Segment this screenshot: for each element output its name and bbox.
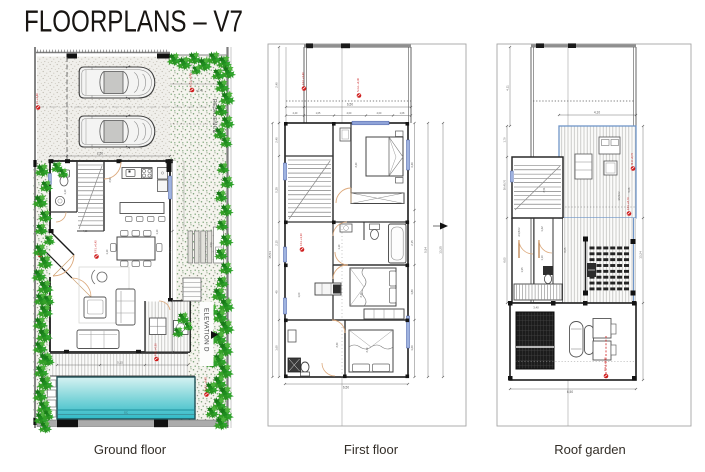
svg-text:1,05: 1,05 [316,112,321,115]
svg-text:F.F.L +3,40: F.F.L +3,40 [301,72,305,85]
svg-text:9,06: 9,06 [628,187,631,192]
svg-text:6,50: 6,50 [343,386,349,390]
svg-text:M.H +9,70: M.H +9,70 [630,152,634,165]
svg-text:36,5m²: 36,5m² [617,191,621,200]
svg-text:2,40: 2,40 [275,82,279,88]
svg-text:Roof garden: Roof garden [554,442,626,457]
svg-text:24,8m²: 24,8m² [517,227,521,236]
svg-text:1,10: 1,10 [540,255,544,261]
svg-text:N.G.L +0,45: N.G.L +0,45 [189,72,193,87]
svg-text:RESIDENCE: RESIDENCE [211,99,217,134]
svg-text:6,50: 6,50 [347,103,353,107]
svg-text:Ground floor: Ground floor [94,442,167,457]
svg-text:1,60: 1,60 [275,345,279,351]
svg-text:+0,45: +0,45 [196,89,204,93]
svg-text:6,05: 6,05 [503,257,507,263]
svg-text:3,40: 3,40 [533,306,539,310]
svg-text:2,00: 2,00 [347,112,352,115]
svg-text:1,60: 1,60 [410,345,414,351]
svg-text:1,35: 1,35 [520,267,524,273]
svg-text:2,40: 2,40 [275,137,279,143]
svg-text:1,10: 1,10 [156,229,159,234]
svg-text:3,90: 3,90 [109,177,112,182]
svg-text:1,08: 1,08 [400,112,405,115]
svg-text:5,15: 5,15 [117,361,123,365]
svg-text:1,10: 1,10 [338,244,341,249]
svg-text:P.L +0,40: P.L +0,40 [35,93,39,104]
svg-text:3,51: 3,51 [543,187,546,192]
svg-text:N.G.L +3,30: N.G.L +3,30 [356,77,360,92]
svg-text:6,50: 6,50 [567,390,573,394]
svg-text:30,40,70: 30,40,70 [503,179,507,190]
svg-text:N.G.L +0,25: N.G.L +0,25 [204,376,208,391]
svg-text:40: 40 [275,290,279,294]
svg-text:1,10: 1,10 [106,249,109,254]
svg-text:13,25: 13,25 [439,246,443,254]
svg-text:3,10: 3,10 [360,292,363,297]
svg-text:4,10: 4,10 [594,111,600,115]
svg-text:F.F.L +3,30: F.F.L +3,30 [299,233,303,246]
svg-text:F.F.L +0,30: F.F.L +0,30 [154,343,158,356]
svg-text:1,22: 1,22 [540,226,544,232]
svg-text:2,50: 2,50 [97,152,103,156]
svg-text:4,60: 4,60 [83,230,88,233]
svg-text:6,05: 6,05 [564,247,567,252]
svg-text:2,50: 2,50 [209,242,213,248]
svg-text:FLOORPLANS – V7: FLOORPLANS – V7 [24,5,243,39]
svg-text:4,25: 4,25 [168,247,172,253]
svg-text:4,11: 4,11 [506,85,510,91]
svg-text:First floor: First floor [344,442,399,457]
svg-text:3,40: 3,40 [410,162,414,168]
svg-text:5,29: 5,29 [275,187,279,193]
svg-text:15,54: 15,54 [268,251,272,259]
svg-text:2,00: 2,00 [377,112,382,115]
svg-text:1,70: 1,70 [503,137,507,143]
svg-text:3,30: 3,30 [336,342,339,347]
svg-text:F.F.L +6,70: F.F.L +6,70 [626,197,630,210]
svg-text:ELEVATION D: ELEVATION D [203,308,210,352]
svg-text:5,54: 5,54 [424,247,428,253]
svg-text:2,15: 2,15 [275,240,279,246]
svg-text:13,24: 13,24 [639,251,643,259]
svg-text:1,10: 1,10 [64,189,67,194]
svg-text:1,80: 1,80 [410,289,414,295]
svg-text:P.G.L +9,90: P.G.L +9,90 [603,357,607,371]
svg-text:F.F.L +0,45: F.F.L +0,45 [94,240,98,253]
svg-text:3,40: 3,40 [366,347,369,352]
svg-text:1,00: 1,00 [298,292,301,297]
svg-text:2,15: 2,15 [410,240,414,246]
svg-text:3,40: 3,40 [355,162,358,167]
svg-text:2,40: 2,40 [293,112,298,115]
